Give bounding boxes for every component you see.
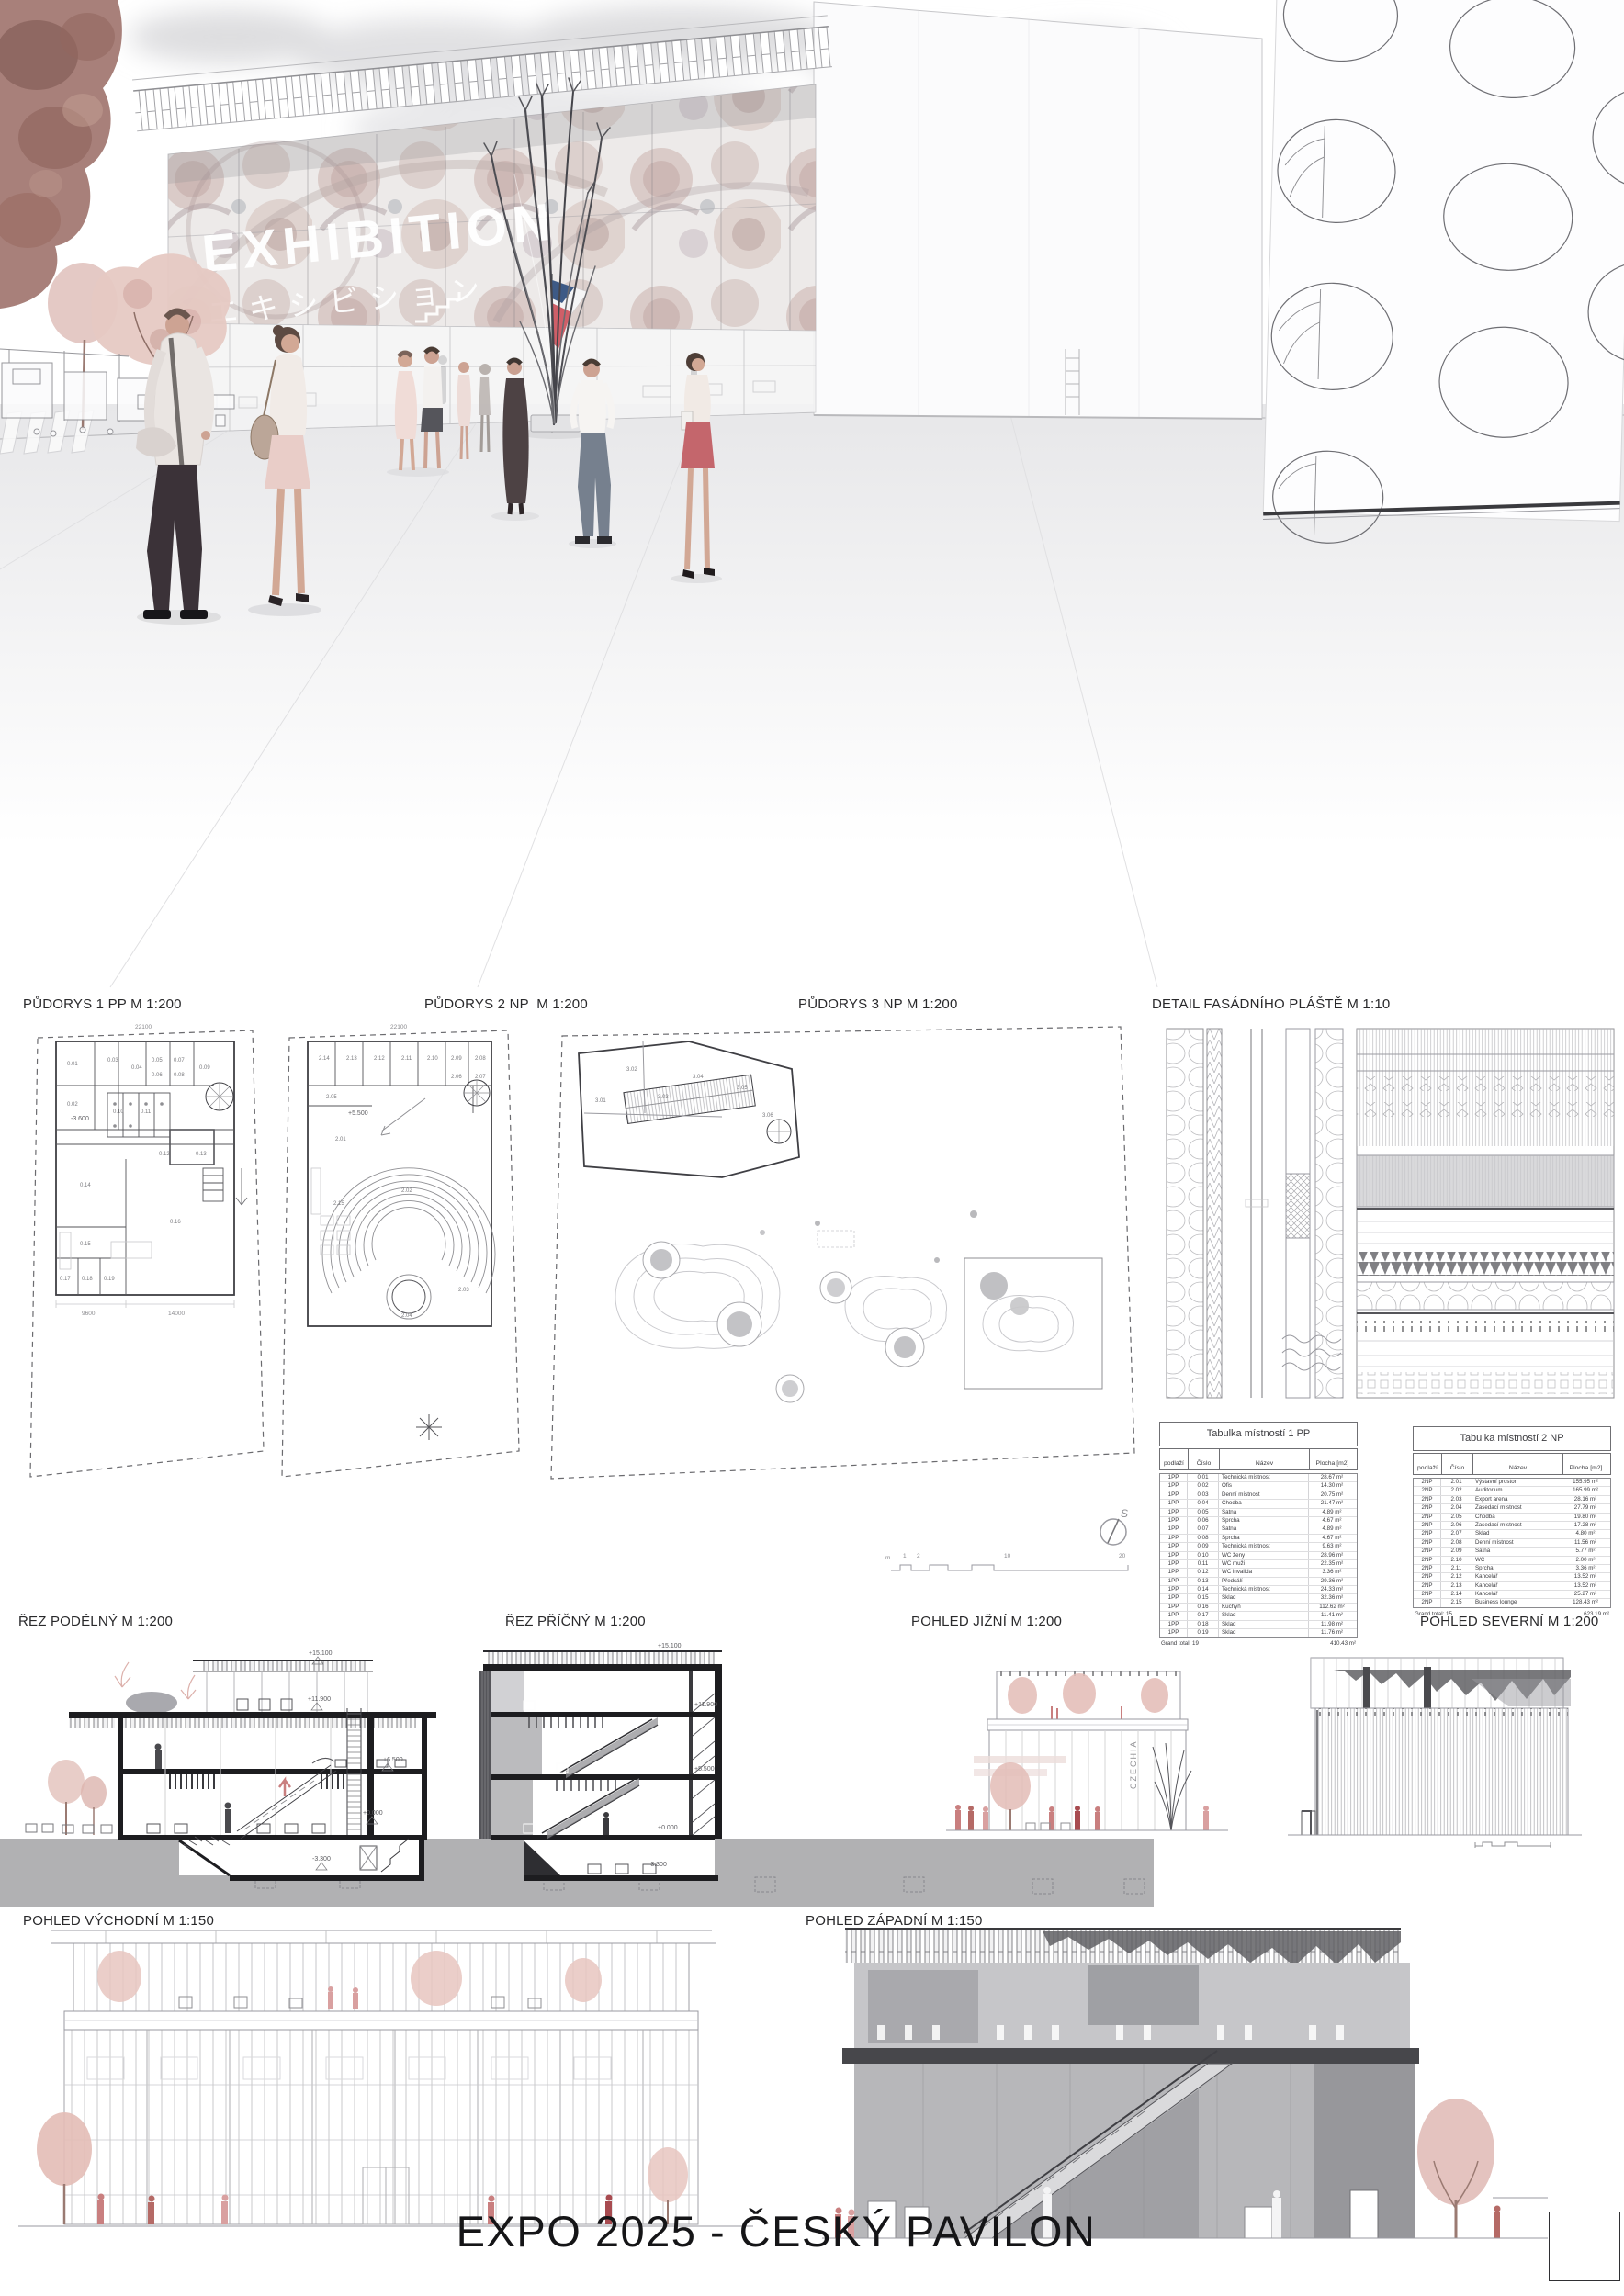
table-title: Tabulka místností 1 PP	[1159, 1422, 1358, 1446]
upper-trees	[1008, 1673, 1168, 1714]
scale-bar: m 1 2 10 20	[885, 1553, 1128, 1570]
table-row: 1PP 0.18 Sklad 11.98 m²	[1160, 1621, 1357, 1629]
label-facade-detail: DETAIL FASÁDNÍHO PLÁŠTĚ M 1:10	[1152, 996, 1390, 1012]
table-row: 2NP 2.12 Kancelář 13.52 m²	[1414, 1573, 1610, 1581]
table-row: 1PP 0.10 WC ženy 28.96 m²	[1160, 1552, 1357, 1560]
svg-text:2.15: 2.15	[333, 1201, 344, 1207]
svg-text:0.03: 0.03	[107, 1058, 118, 1064]
svg-text:0.18: 0.18	[82, 1277, 93, 1282]
svg-text:0.15: 0.15	[80, 1242, 91, 1247]
label-elevation-north: POHLED SEVERNÍ M 1:200	[1420, 1614, 1598, 1629]
svg-text:2.13: 2.13	[346, 1056, 357, 1062]
table-row: 2NP 2.11 Sprcha 3.36 m²	[1414, 1565, 1610, 1573]
table-body: 2NP 2.01 Výstavní prostor 155.95 m² 2NP …	[1413, 1478, 1611, 1608]
svg-text:-3.300: -3.300	[648, 1862, 667, 1868]
room-table-2np: Tabulka místností 2 NP podlaží Číslo Náz…	[1413, 1426, 1611, 1617]
svg-text:+15.100: +15.100	[658, 1643, 682, 1649]
south-tree	[990, 1762, 1031, 1830]
svg-text:+5.500: +5.500	[694, 1766, 715, 1773]
svg-text:2.12: 2.12	[374, 1056, 385, 1062]
elevation-south-drawing: CZECHIA	[942, 1635, 1235, 1864]
facade-vertical-text: CZECHIA	[1129, 1739, 1138, 1789]
elevation-north-drawing	[1279, 1635, 1596, 1878]
svg-text:+15.100: +15.100	[309, 1650, 333, 1657]
table-row: 1PP 0.16 Kuchyň 112.62 m²	[1160, 1604, 1357, 1612]
table-row: 1PP 0.01 Technická místnost 28.67 m²	[1160, 1474, 1357, 1482]
table-row: 1PP 0.11 WC muži 22.35 m²	[1160, 1560, 1357, 1569]
svg-text:+11.900: +11.900	[694, 1702, 717, 1708]
board-title: EXPO 2025 - ČESKÝ PAVILON	[0, 2206, 1552, 2257]
level-mark: -3.600	[71, 1116, 89, 1122]
table-row: 2NP 2.01 Výstavní prostor 155.95 m²	[1414, 1479, 1610, 1487]
svg-text:3.05: 3.05	[737, 1086, 748, 1091]
right-building	[814, 2, 1262, 419]
table-header: podlaží Číslo Název Plocha [m2]	[1159, 1448, 1358, 1470]
label-section-long: ŘEZ PODÉLNÝ M 1:200	[18, 1614, 173, 1629]
svg-text:3.02: 3.02	[626, 1067, 637, 1073]
table-row: 1PP 0.17 Sklad 11.41 m²	[1160, 1612, 1357, 1620]
table-row: 1PP 0.03 Denní místnost 20.75 m²	[1160, 1491, 1357, 1500]
svg-text:0.08: 0.08	[174, 1073, 185, 1078]
table-body: 1PP 0.01 Technická místnost 28.67 m² 1PP…	[1159, 1473, 1358, 1638]
north-arrow: S	[1100, 1507, 1128, 1545]
svg-text:2.14: 2.14	[319, 1056, 330, 1062]
svg-text:0.05: 0.05	[152, 1058, 163, 1064]
table-row: 1PP 0.08 Sprcha 4.67 m²	[1160, 1535, 1357, 1543]
svg-text:1: 1	[903, 1553, 907, 1559]
svg-text:14000: 14000	[168, 1311, 185, 1317]
table-row: 2NP 2.03 Export arena 28.16 m²	[1414, 1496, 1610, 1504]
svg-text:9600: 9600	[82, 1311, 96, 1317]
svg-text:2.05: 2.05	[326, 1095, 337, 1100]
svg-text:2.09: 2.09	[451, 1056, 462, 1062]
svg-text:2.06: 2.06	[451, 1075, 462, 1080]
north-arrow-and-scale-bar: S m 1 2 10 20	[873, 1497, 1148, 1580]
section-trees	[48, 1760, 107, 1835]
svg-text:0.12: 0.12	[159, 1152, 170, 1157]
svg-text:3.01: 3.01	[595, 1098, 606, 1104]
svg-text:0.01: 0.01	[67, 1062, 78, 1067]
svg-text:+0.000: +0.000	[658, 1825, 678, 1831]
label-section-cross: ŘEZ PŘÍČNÝ M 1:200	[505, 1614, 646, 1629]
plan-2np-drawing: +5.500 2.14 2.13 2.12 2.11 2.10 2.09 2.0…	[271, 1021, 537, 1499]
svg-text:0.19: 0.19	[104, 1277, 115, 1282]
table-row: 2NP 2.05 Chodba 19.80 m²	[1414, 1514, 1610, 1522]
plan-1pp-drawing: -3.600 0.01 0.02 0.03 0.04 0.05 0.06 0.0…	[23, 1021, 280, 1499]
hero-rendering: EXHIBITION エキシビション	[0, 0, 1624, 992]
room-table-1pp: Tabulka místností 1 PP podlaží Číslo Náz…	[1159, 1422, 1358, 1647]
table-row: 1PP 0.02 Ofis 14.30 m²	[1160, 1482, 1357, 1491]
svg-text:+11.900: +11.900	[308, 1696, 331, 1703]
svg-text:22100: 22100	[390, 1024, 407, 1030]
table-title: Tabulka místností 2 NP	[1413, 1426, 1611, 1451]
table-row: 1PP 0.05 Šatna 4.89 m²	[1160, 1509, 1357, 1517]
table-row: 2NP 2.06 Zasedací místnost 17.28 m²	[1414, 1522, 1610, 1530]
table-row: 2NP 2.15 Business lounge 128.43 m²	[1414, 1599, 1610, 1606]
table-row: 2NP 2.07 Sklad 4.80 m²	[1414, 1530, 1610, 1538]
svg-text:0.06: 0.06	[152, 1073, 163, 1078]
svg-text:0.10: 0.10	[113, 1109, 124, 1115]
table-row: 1PP 0.06 Sprcha 4.67 m²	[1160, 1517, 1357, 1525]
svg-text:2.10: 2.10	[427, 1056, 438, 1062]
svg-text:0.07: 0.07	[174, 1058, 185, 1064]
level-mark: +5.500	[348, 1110, 368, 1117]
svg-text:S: S	[1121, 1507, 1128, 1520]
svg-text:22100: 22100	[135, 1024, 152, 1030]
svg-text:10: 10	[1004, 1553, 1011, 1559]
table-row: 2NP 2.02 Auditorium 165.99 m²	[1414, 1487, 1610, 1495]
svg-text:20: 20	[1119, 1553, 1126, 1559]
svg-text:3.04: 3.04	[693, 1075, 704, 1080]
svg-text:3.06: 3.06	[762, 1113, 773, 1119]
svg-text:-3.300: -3.300	[312, 1856, 331, 1863]
svg-text:2.07: 2.07	[475, 1075, 486, 1080]
svg-text:+0.000: +0.000	[363, 1810, 383, 1817]
label-plan-1pp: PŮDORYS 1 PP M 1:200	[23, 996, 182, 1012]
svg-text:0.02: 0.02	[67, 1102, 78, 1108]
svg-text:0.14: 0.14	[80, 1183, 91, 1188]
svg-text:2.08: 2.08	[475, 1056, 486, 1062]
elevation-marks: +15.100 +11.900 +5.500 +0.000 -3.300	[648, 1643, 717, 1868]
svg-text:2.04: 2.04	[401, 1313, 412, 1319]
table-row: 2NP 2.14 Kancelář 25.27 m²	[1414, 1591, 1610, 1599]
svg-text:2.02: 2.02	[401, 1188, 412, 1194]
stamp-box	[1549, 2212, 1620, 2281]
elevation-east-drawing	[14, 1919, 758, 2241]
svg-text:+6.500: +6.500	[383, 1757, 403, 1763]
svg-text:0.04: 0.04	[131, 1065, 142, 1071]
facade-circles-panel	[1262, 0, 1624, 553]
table-row: 2NP 2.09 Šatna 5.77 m²	[1414, 1548, 1610, 1556]
svg-text:0.13: 0.13	[196, 1152, 207, 1157]
table-row: 2NP 2.13 Kancelář 13.52 m²	[1414, 1582, 1610, 1591]
table-row: 2NP 2.08 Denní místnost 11.56 m²	[1414, 1539, 1610, 1548]
section-longitudinal-drawing: +15.100 +11.900 +6.500 +0.000 -3.300	[9, 1635, 542, 1912]
plan-3np-drawing: 3.01 3.02 3.03 3.04 3.05 3.06	[542, 1021, 1153, 1499]
table-row: 1PP 0.04 Chodba 21.47 m²	[1160, 1500, 1357, 1508]
svg-text:0.17: 0.17	[60, 1277, 71, 1282]
star-symbol	[416, 1414, 442, 1440]
svg-text:2.03: 2.03	[458, 1288, 469, 1293]
billboard: EXHIBITION エキシビション	[168, 84, 816, 331]
svg-text:2.01: 2.01	[335, 1137, 346, 1142]
svg-text:m: m	[885, 1555, 890, 1561]
table-row: 1PP 0.12 WC invalida 3.36 m²	[1160, 1569, 1357, 1577]
svg-text:2: 2	[917, 1553, 920, 1559]
facade-detail-drawing	[1159, 1018, 1624, 1417]
section-cross-drawing: +15.100 +11.900 +5.500 +0.000 -3.300	[468, 1635, 744, 1912]
table-row: 1PP 0.14 Technická místnost 24.33 m²	[1160, 1586, 1357, 1594]
table-row: 1PP 0.09 Technická místnost 9.63 m²	[1160, 1543, 1357, 1551]
presentation-board: EXHIBITION エキシビション	[0, 0, 1624, 2296]
roof-trees	[643, 1210, 977, 1402]
svg-text:0.09: 0.09	[199, 1065, 210, 1071]
table-header: podlaží Číslo Název Plocha [m2]	[1413, 1453, 1611, 1475]
table-row: 1PP 0.07 Šatna 4.89 m²	[1160, 1525, 1357, 1534]
svg-text:2.11: 2.11	[401, 1056, 412, 1062]
svg-text:3.03: 3.03	[658, 1095, 669, 1100]
mini-scale-bar	[1475, 1842, 1551, 1848]
elevation-west-drawing	[813, 1915, 1557, 2247]
svg-text:0.11: 0.11	[141, 1109, 152, 1115]
label-plan-2np: PŮDORYS 2 NP M 1:200	[424, 996, 588, 1012]
table-row: 2NP 2.04 Zasedací místnost 27.79 m²	[1414, 1504, 1610, 1513]
label-elevation-south: POHLED JIŽNÍ M 1:200	[911, 1614, 1062, 1629]
table-row: 2NP 2.10 WC 2.00 m²	[1414, 1557, 1610, 1565]
table-row: 1PP 0.15 Sklad 32.36 m²	[1160, 1594, 1357, 1603]
svg-text:0.16: 0.16	[170, 1220, 181, 1225]
left-tree	[0, 0, 122, 309]
label-plan-3np: PŮDORYS 3 NP M 1:200	[798, 996, 958, 1012]
table-row: 1PP 0.13 Předsálí 29.36 m²	[1160, 1578, 1357, 1586]
